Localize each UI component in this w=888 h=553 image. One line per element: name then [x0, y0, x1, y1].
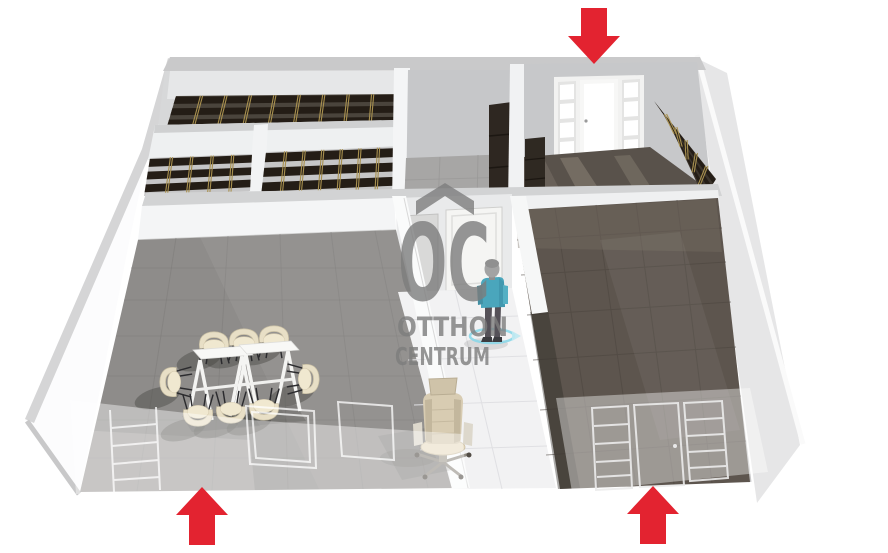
chair-seat	[298, 368, 311, 390]
door-handle	[584, 119, 587, 122]
middle-back-room	[404, 70, 512, 206]
chair-headrest	[429, 378, 457, 395]
watermark-logo-text: OC	[398, 202, 490, 325]
storage-shelf-band-left	[144, 154, 252, 196]
floorplan-3d-render: OC OTTHON CENTRUM	[0, 0, 888, 553]
watermark-brand-line2: CENTRUM	[395, 342, 490, 371]
wall-middle-entrance	[508, 64, 526, 206]
storage-rooms	[144, 68, 410, 206]
storage-shelf-band-right	[261, 147, 396, 196]
watermark-brand-line1: OTTHON	[397, 312, 508, 343]
ghost-door-handle	[673, 444, 677, 448]
chair-seat	[168, 371, 181, 393]
chair-seat	[220, 402, 242, 415]
floorplan-viewport: OC OTTHON CENTRUM	[0, 0, 888, 553]
armrest	[463, 422, 473, 446]
entrance-room	[524, 62, 716, 206]
